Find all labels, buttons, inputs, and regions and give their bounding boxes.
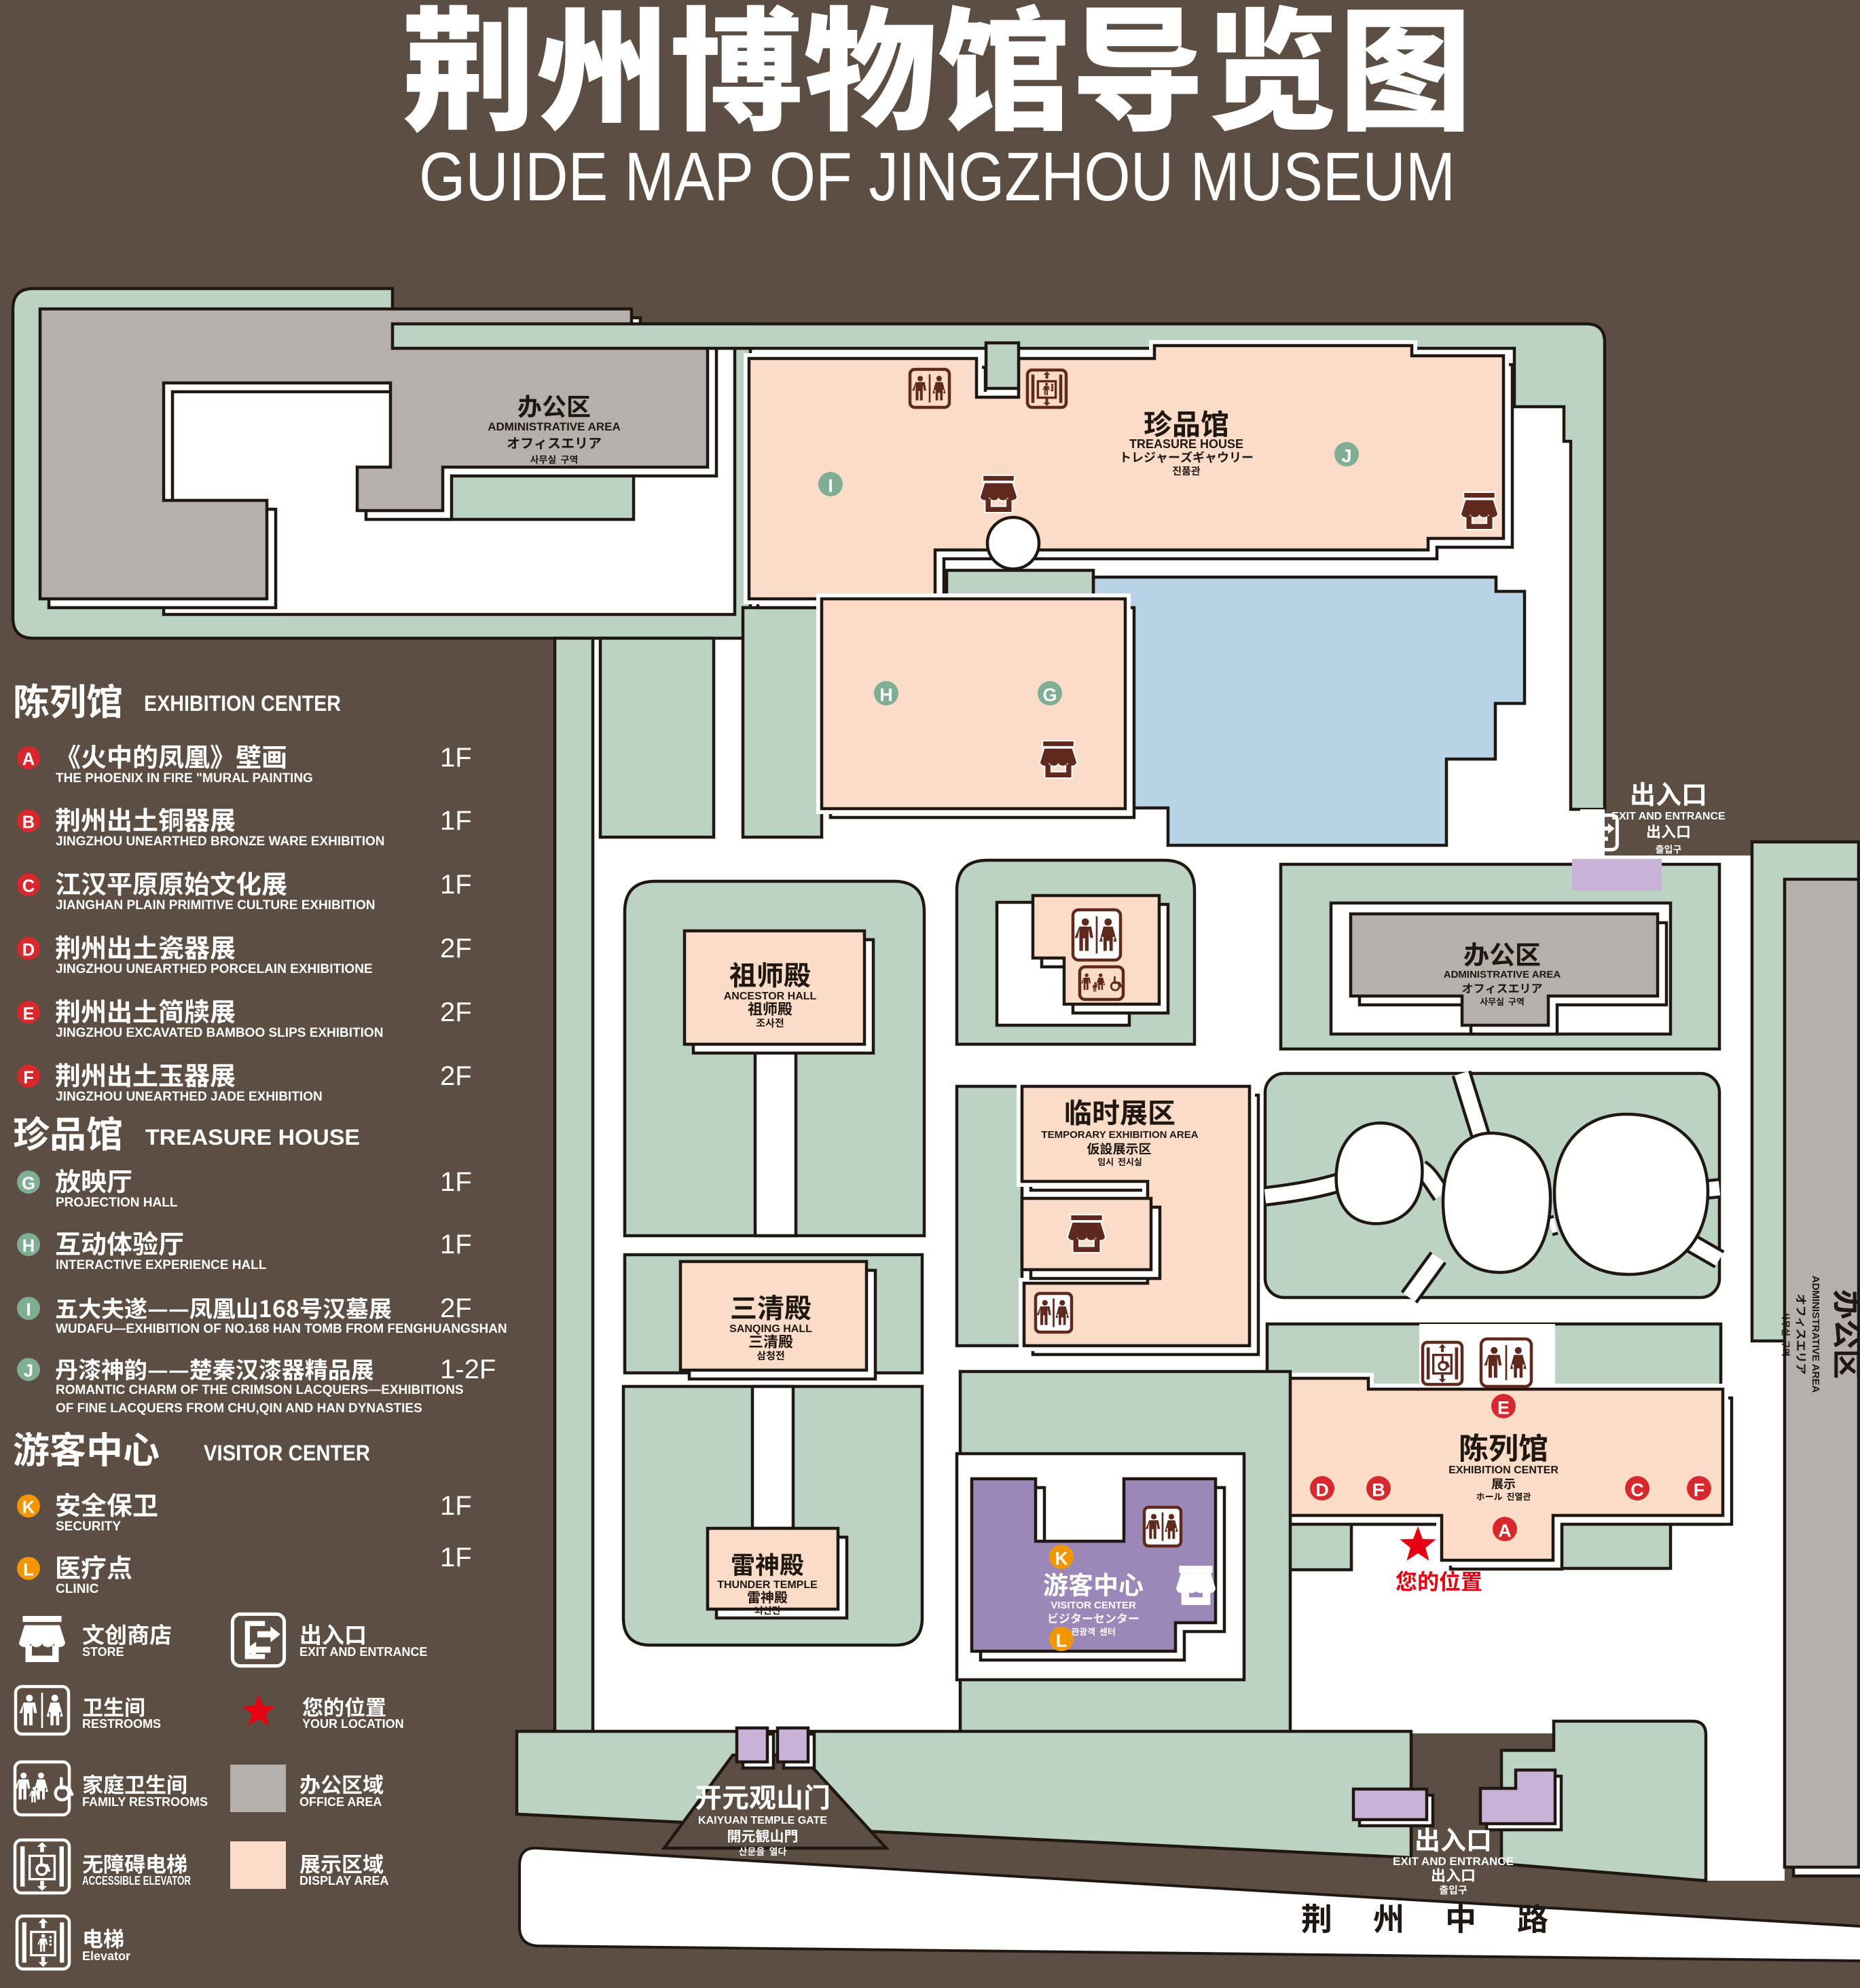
svg-text:YOUR LOCATION: YOUR LOCATION	[302, 1717, 404, 1731]
svg-text:J: J	[1341, 445, 1351, 466]
svg-text:K: K	[1055, 1548, 1068, 1568]
svg-text:J: J	[24, 1362, 33, 1381]
svg-text:OF FINE LACQUERS FROM CHU,QIN: OF FINE LACQUERS FROM CHU,QIN AND HAN DY…	[56, 1401, 422, 1416]
svg-text:ACCESSIBLE ELEVATOR: ACCESSIBLE ELEVATOR	[82, 1874, 191, 1888]
svg-text:1-2F: 1-2F	[440, 1355, 496, 1384]
svg-text:TEMPORARY EXHIBITION AREA: TEMPORARY EXHIBITION AREA	[1041, 1129, 1198, 1141]
svg-text:THUNDER TEMPLE: THUNDER TEMPLE	[717, 1579, 818, 1591]
svg-text:ADMINISTRATIVE AREA: ADMINISTRATIVE AREA	[1810, 1276, 1821, 1393]
svg-text:2F: 2F	[440, 934, 472, 963]
svg-text:SANQING HALL: SANQING HALL	[729, 1323, 812, 1335]
svg-text:ADMINISTRATIVE AREA: ADMINISTRATIVE AREA	[1444, 969, 1561, 980]
svg-text:THE PHOENIX IN FIRE "MURAL PAI: THE PHOENIX IN FIRE "MURAL PAINTING	[56, 771, 313, 786]
svg-text:B: B	[1372, 1479, 1385, 1500]
svg-text:I: I	[828, 475, 833, 496]
svg-text:RESTROOMS: RESTROOMS	[82, 1717, 161, 1731]
svg-text:H: H	[22, 1237, 35, 1256]
svg-text:1F: 1F	[440, 806, 472, 836]
svg-text:A: A	[1498, 1520, 1512, 1541]
svg-text:Elevator: Elevator	[82, 1949, 130, 1963]
svg-text:VISITOR CENTER: VISITOR CENTER	[204, 1441, 370, 1465]
svg-text:VISITOR CENTER: VISITOR CENTER	[1051, 1600, 1136, 1611]
svg-text:K: K	[22, 1498, 35, 1517]
svg-text:1F: 1F	[440, 1230, 472, 1259]
svg-text:OFFICE AREA: OFFICE AREA	[299, 1795, 382, 1809]
svg-text:L: L	[1056, 1630, 1068, 1651]
svg-text:F: F	[1694, 1479, 1705, 1500]
svg-text:EXIT AND ENTRANCE: EXIT AND ENTRANCE	[299, 1645, 427, 1659]
svg-text:F: F	[23, 1069, 34, 1088]
svg-text:ROMANTIC CHARM OF THE CRIMSON: ROMANTIC CHARM OF THE CRIMSON LACQUERS—E…	[56, 1383, 464, 1397]
svg-text:JINGZHOU UNEARTHED JADE EXHIBI: JINGZHOU UNEARTHED JADE EXHIBITION	[56, 1090, 323, 1104]
svg-text:ANCESTOR HALL: ANCESTOR HALL	[724, 991, 817, 1002]
svg-text:FAMILY RESTROOMS: FAMILY RESTROOMS	[82, 1795, 208, 1809]
svg-text:1F: 1F	[440, 1543, 472, 1572]
svg-text:1F: 1F	[440, 1491, 472, 1521]
svg-text:WUDAFU—EXHIBITION OF NO.168 HA: WUDAFU—EXHIBITION OF NO.168 HAN TOMB FRO…	[56, 1322, 507, 1336]
svg-text:D: D	[1315, 1479, 1329, 1500]
svg-text:2F: 2F	[440, 1061, 472, 1091]
svg-text:EXHIBITION CENTER: EXHIBITION CENTER	[1448, 1465, 1558, 1476]
svg-text:STORE: STORE	[82, 1645, 124, 1659]
svg-text:EXIT AND ENTRANCE: EXIT AND ENTRANCE	[1611, 811, 1726, 822]
svg-text:TREASURE HOUSE: TREASURE HOUSE	[1129, 437, 1243, 451]
svg-text:JINGZHOU UNEARTHED BRONZE WARE: JINGZHOU UNEARTHED BRONZE WARE EXHIBITIO…	[56, 834, 385, 849]
svg-text:SECURITY: SECURITY	[56, 1520, 121, 1534]
svg-text:H: H	[879, 684, 893, 705]
svg-text:EXIT AND ENTRANCE: EXIT AND ENTRANCE	[1393, 1855, 1514, 1868]
svg-text:1F: 1F	[440, 743, 472, 773]
svg-text:JINGZHOU UNEARTHED PORCELAIN E: JINGZHOU UNEARTHED PORCELAIN EXHIBITIONE	[56, 962, 373, 976]
svg-text:E: E	[1497, 1397, 1510, 1418]
svg-text:C: C	[1630, 1479, 1644, 1500]
svg-text:C: C	[22, 877, 35, 896]
svg-text:D: D	[22, 941, 35, 960]
svg-text:KAIYUAN TEMPLE GATE: KAIYUAN TEMPLE GATE	[698, 1815, 827, 1826]
svg-text:2F: 2F	[440, 1293, 472, 1323]
svg-text:B: B	[22, 813, 35, 832]
svg-text:1F: 1F	[440, 870, 472, 900]
svg-text:JINGZHOU EXCAVATED BAMBOO SLIP: JINGZHOU EXCAVATED BAMBOO SLIPS EXHIBITI…	[56, 1026, 383, 1040]
svg-text:TREASURE HOUSE: TREASURE HOUSE	[145, 1125, 360, 1149]
svg-text:1F: 1F	[440, 1167, 472, 1197]
svg-text:CLINIC: CLINIC	[56, 1582, 99, 1596]
svg-text:DISPLAY AREA: DISPLAY AREA	[299, 1874, 388, 1888]
svg-text:G: G	[1042, 684, 1057, 705]
svg-text:PROJECTION HALL: PROJECTION HALL	[56, 1196, 178, 1210]
svg-text:2F: 2F	[440, 997, 472, 1027]
svg-text:G: G	[22, 1175, 35, 1194]
svg-text:A: A	[22, 750, 35, 769]
svg-text:GUIDE MAP OF JINGZHOU MUSEUM: GUIDE MAP OF JINGZHOU MUSEUM	[419, 139, 1455, 215]
svg-text:ADMINISTRATIVE AREA: ADMINISTRATIVE AREA	[488, 420, 621, 433]
svg-text:L: L	[23, 1561, 34, 1580]
svg-text:JIANGHAN PLAIN PRIMITIVE CULTU: JIANGHAN PLAIN PRIMITIVE CULTURE EXHIBIT…	[56, 898, 375, 913]
svg-text:EXHIBITION CENTER: EXHIBITION CENTER	[144, 691, 341, 716]
svg-text:E: E	[22, 1005, 34, 1024]
svg-text:INTERACTIVE EXPERIENCE HALL: INTERACTIVE EXPERIENCE HALL	[56, 1258, 267, 1272]
svg-text:I: I	[26, 1301, 31, 1320]
